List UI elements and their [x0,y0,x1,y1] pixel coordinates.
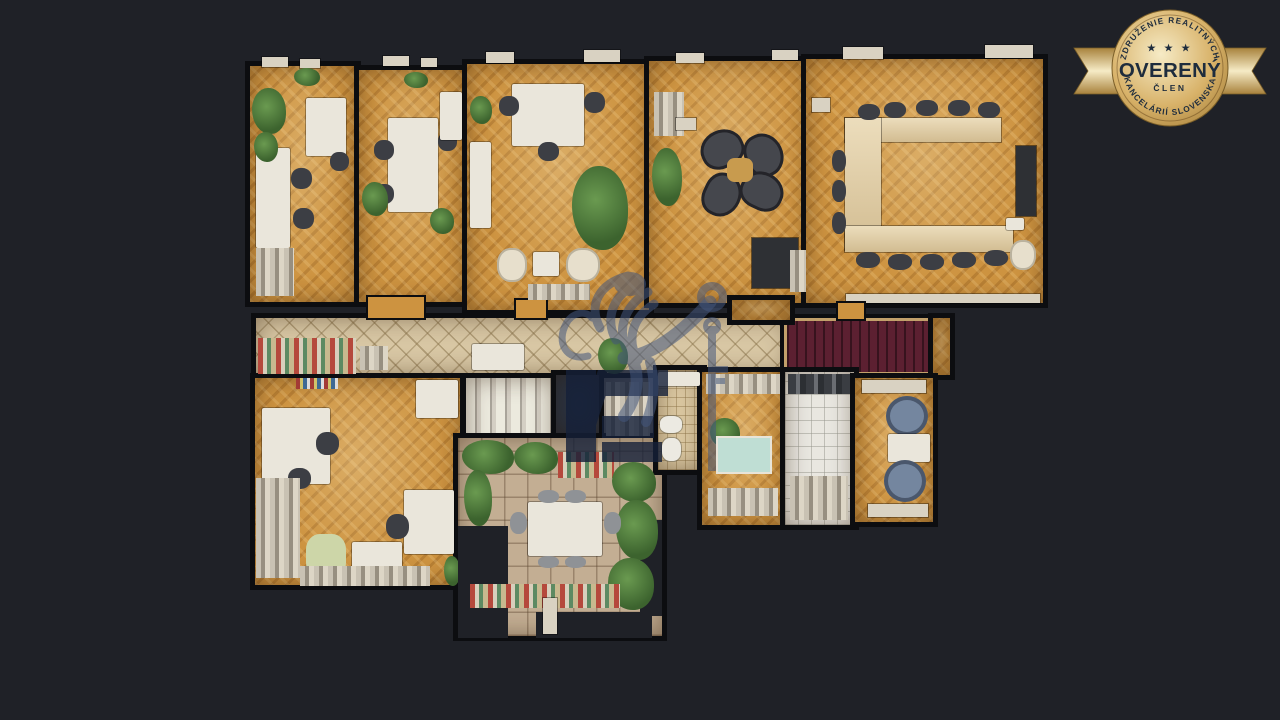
plant [470,96,492,124]
counter [1006,218,1024,230]
clutter [706,374,780,394]
chair-gray [565,490,586,503]
clutter [256,478,300,578]
sill [985,45,1033,58]
plant [294,68,320,86]
plant [362,182,388,216]
strip [846,294,1040,303]
wood-tab [516,300,546,318]
chair-dark [374,140,394,160]
room-corridor-end [933,318,950,375]
chair-dark [920,254,944,270]
shelf-books [296,378,338,389]
chair-gray [538,556,559,568]
wood-tab [368,297,424,318]
desk [306,98,346,156]
plant [404,72,428,88]
chair-dark [832,180,846,202]
ctable [845,226,1013,252]
tv [1016,146,1036,216]
clutter [528,284,590,300]
counter [440,92,462,140]
chair-blue [884,460,926,502]
sill [772,50,798,60]
clutter [606,382,650,436]
plant [252,88,286,134]
clutter [708,488,778,516]
chair-dark [858,104,880,120]
chair-dark [584,92,605,113]
chair-cream [566,248,600,282]
sill [486,52,514,63]
hole [458,526,508,638]
chair-dark [916,100,938,116]
room-skylight [556,375,602,433]
table-gold [727,158,753,182]
sill [383,56,409,66]
desk [512,84,584,146]
chair-dark [884,102,906,118]
badge-subtitle: ČLEN [1153,82,1186,93]
table-teal [718,438,770,472]
badge-stars: ★ ★ ★ [1147,43,1193,54]
counter [472,344,524,370]
sill [421,58,437,67]
chair-dark [856,252,880,268]
chair-dark [499,96,519,116]
sill [300,59,320,68]
fixture [660,416,682,433]
sill [843,47,883,59]
desk [404,490,454,554]
plant [612,462,656,502]
desk [388,118,438,212]
sill [676,118,696,130]
clutter-color [258,338,356,374]
clutter-color [558,452,614,478]
sill [812,98,830,112]
room-vestibule [732,300,790,320]
badge-title: OVERENÝ [1119,58,1221,82]
clutter-dark [788,374,850,394]
plant [430,208,454,234]
sill [868,504,928,517]
chair-dark [293,208,314,229]
chair-dark [832,212,846,234]
chair-dark [386,514,409,539]
table-white [888,434,930,462]
wood-tab [838,303,864,319]
sill [584,50,620,62]
chair-gray [510,512,527,534]
chair-dark [888,254,912,270]
chair-dark [330,152,349,171]
plant [514,442,558,474]
chair-cream [1010,240,1036,270]
floorplan-canvas: ZDRUŽENIE REALITNÝCH ★ ★ ★ OVERENÝ ČLEN … [0,0,1280,720]
verified-member-badge: ZDRUŽENIE REALITNÝCH ★ ★ ★ OVERENÝ ČLEN … [1072,4,1268,132]
chair-dark [316,432,339,455]
table-white [528,502,602,556]
clutter [360,346,388,370]
chair-blue [886,396,928,436]
plant [462,440,514,474]
counter [658,372,700,386]
sill [262,57,288,67]
table-white [533,252,559,276]
counter [416,380,458,418]
clutter [790,250,806,292]
plant [616,500,658,560]
fixture [662,438,681,461]
chair-dark [978,102,1000,118]
sill [862,380,926,393]
clutter [256,248,294,296]
clutter [790,476,848,520]
chair-dark [952,252,976,268]
sill [676,53,704,63]
chair-dark [984,250,1008,266]
sill [543,598,557,634]
plant [572,166,628,250]
plant [652,148,682,206]
chair-gray [565,556,586,568]
counter [470,142,491,228]
plant [254,132,278,162]
chair-gray [538,490,559,503]
chair-dark [832,150,846,172]
clutter [300,566,430,586]
chair-dark [948,100,970,116]
chair-dark [538,142,559,161]
chair-cream [497,248,527,282]
plant [464,470,492,526]
chair-gray [604,512,621,534]
chair-dark [291,168,312,189]
desk [256,148,290,248]
room-staircase-red [787,321,935,372]
plant [598,338,628,374]
